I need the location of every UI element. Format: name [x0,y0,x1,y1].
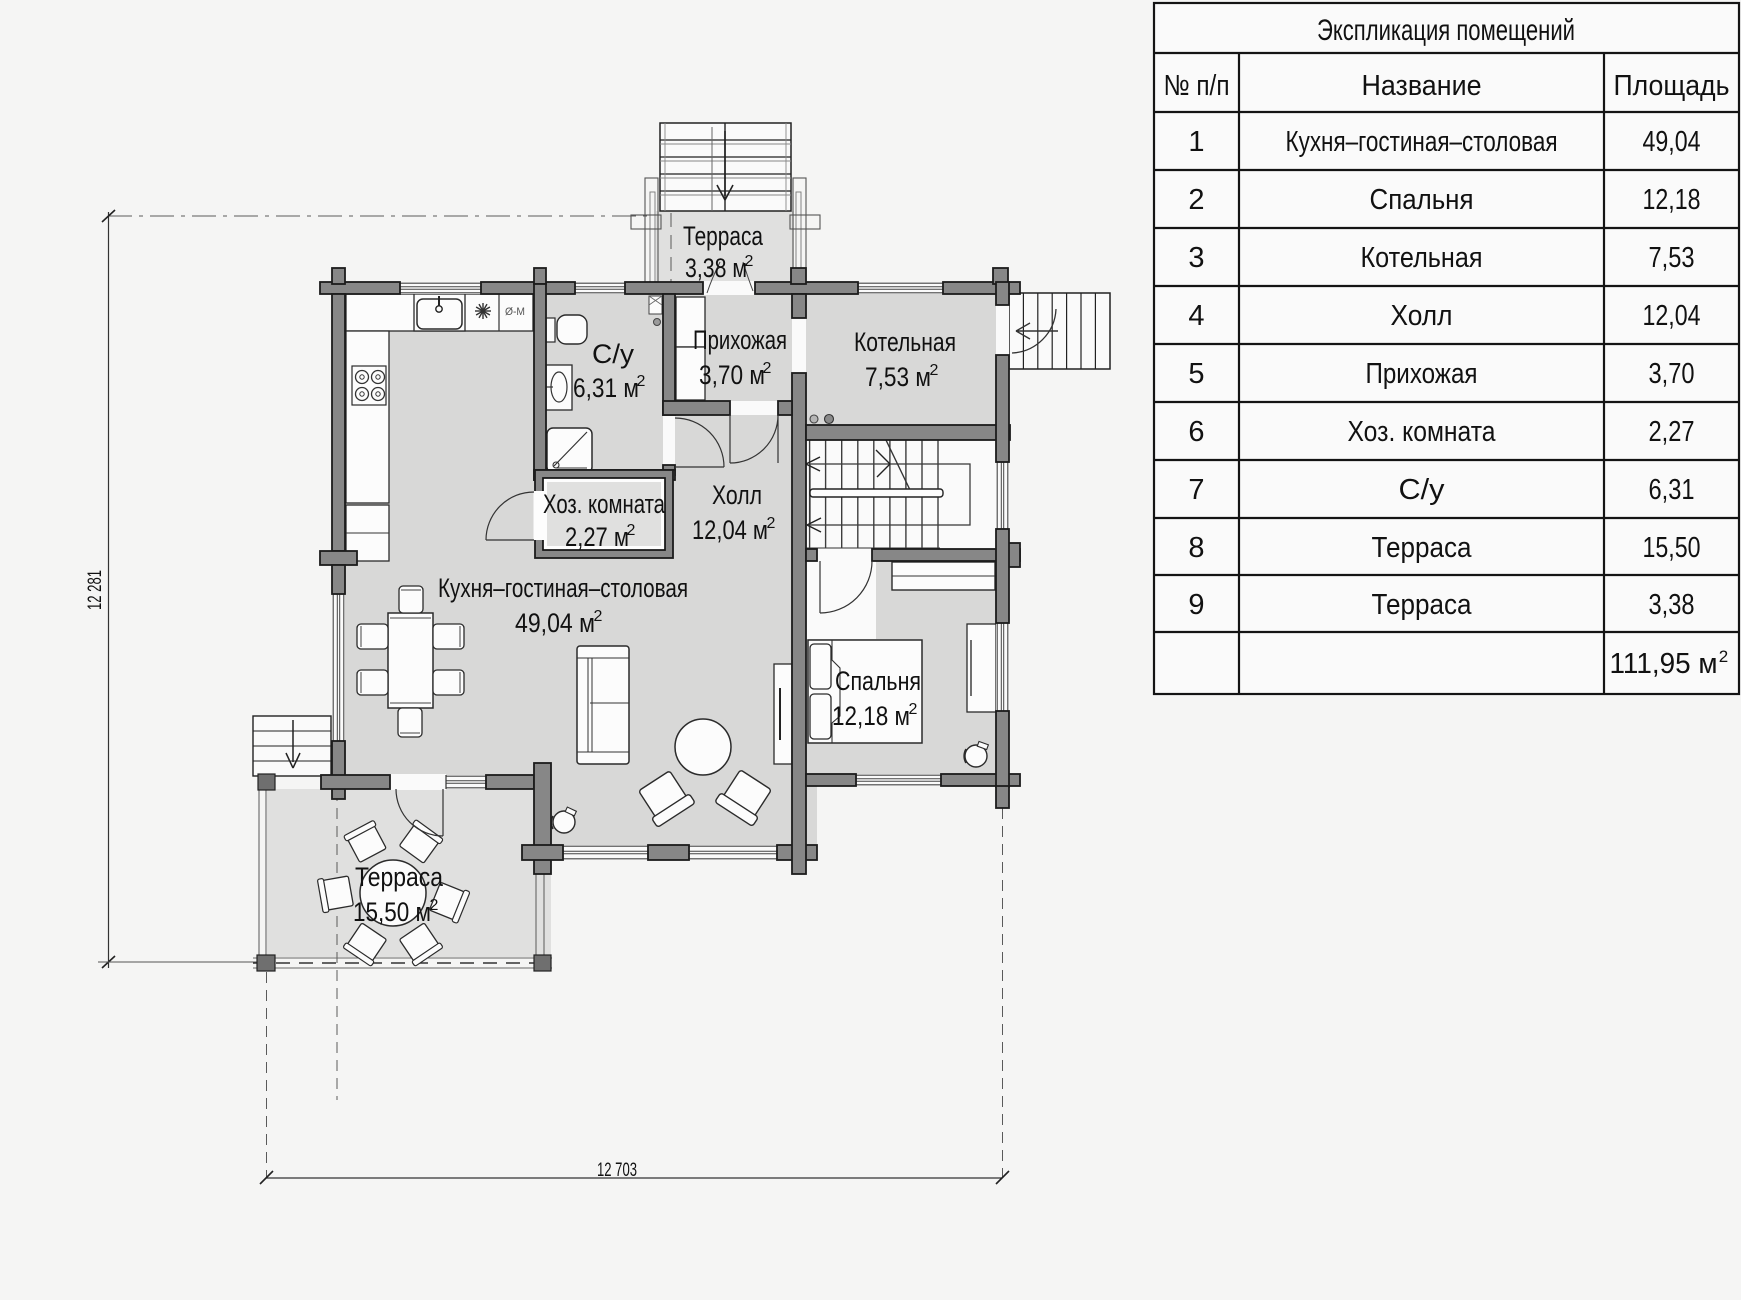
svg-text:5: 5 [1188,358,1204,390]
svg-text:Котельная: Котельная [854,327,956,357]
svg-text:Прихожая: Прихожая [693,325,787,355]
svg-text:С/у: С/у [592,339,635,369]
svg-text:Холл: Холл [712,480,762,510]
svg-text:4: 4 [1188,300,1204,332]
svg-text:6: 6 [1188,416,1204,448]
svg-text:Экспликация помещений: Экспликация помещений [1317,14,1575,47]
svg-text:Терраса: Терраса [1372,589,1473,621]
svg-text:2: 2 [1719,647,1728,666]
svg-text:1: 1 [1188,126,1204,158]
svg-text:2: 2 [763,360,772,377]
svg-text:6,31 м: 6,31 м [573,373,639,403]
svg-text:2: 2 [637,373,646,390]
svg-text:49,04: 49,04 [1643,126,1701,158]
svg-text:2: 2 [930,362,939,379]
svg-text:Спальня: Спальня [1370,184,1474,216]
svg-text:9: 9 [1188,589,1204,621]
svg-text:3: 3 [1188,242,1204,274]
svg-text:Спальня: Спальня [835,666,921,696]
svg-text:3,70: 3,70 [1649,358,1695,390]
svg-text:12,04 м: 12,04 м [692,515,768,545]
svg-text:2: 2 [627,522,636,539]
svg-text:2: 2 [1188,184,1204,216]
svg-text:8: 8 [1188,532,1204,564]
svg-text:2: 2 [745,253,754,270]
svg-text:2,27: 2,27 [1649,416,1695,448]
svg-text:3,70 м: 3,70 м [699,360,765,390]
svg-text:3,38: 3,38 [1649,589,1695,621]
svg-text:7,53: 7,53 [1649,242,1695,274]
svg-text:№ п/п: № п/п [1164,70,1230,102]
svg-text:Терраса: Терраса [683,221,764,251]
svg-text:Терраса: Терраса [355,862,444,892]
svg-text:15,50 м: 15,50 м [353,897,431,927]
svg-text:3,38 м: 3,38 м [685,253,747,283]
svg-text:2: 2 [430,897,439,914]
svg-text:Терраса: Терраса [1372,532,1473,564]
svg-text:Хоз. комната: Хоз. комната [1348,416,1497,448]
svg-text:111,95 м: 111,95 м [1610,648,1718,680]
svg-text:12 703: 12 703 [597,1160,637,1181]
svg-text:2: 2 [767,515,776,532]
svg-text:49,04 м: 49,04 м [515,608,595,638]
svg-text:2: 2 [909,701,918,718]
svg-text:Хоз. комната: Хоз. комната [543,489,666,519]
svg-text:12,04: 12,04 [1643,300,1701,332]
svg-text:6,31: 6,31 [1649,474,1695,506]
svg-text:Ø-M: Ø-M [505,306,525,318]
svg-text:Прихожая: Прихожая [1366,358,1478,390]
svg-text:Холл: Холл [1391,300,1453,332]
svg-text:7,53 м: 7,53 м [865,362,931,392]
svg-text:12,18: 12,18 [1643,184,1701,216]
svg-text:Площадь: Площадь [1614,70,1730,102]
svg-text:Название: Название [1362,70,1482,102]
svg-text:7: 7 [1188,474,1204,506]
svg-text:Котельная: Котельная [1361,242,1483,274]
svg-text:С/у: С/у [1399,474,1446,506]
svg-text:12 281: 12 281 [85,570,106,610]
svg-text:2: 2 [594,608,603,625]
svg-text:Кухня–гостиная–столовая: Кухня–гостиная–столовая [1286,126,1558,158]
svg-text:12,18 м: 12,18 м [832,701,910,731]
svg-text:2,27 м: 2,27 м [565,522,629,552]
svg-text:15,50: 15,50 [1643,532,1701,564]
svg-text:Кухня–гостиная–столовая: Кухня–гостиная–столовая [438,573,688,603]
